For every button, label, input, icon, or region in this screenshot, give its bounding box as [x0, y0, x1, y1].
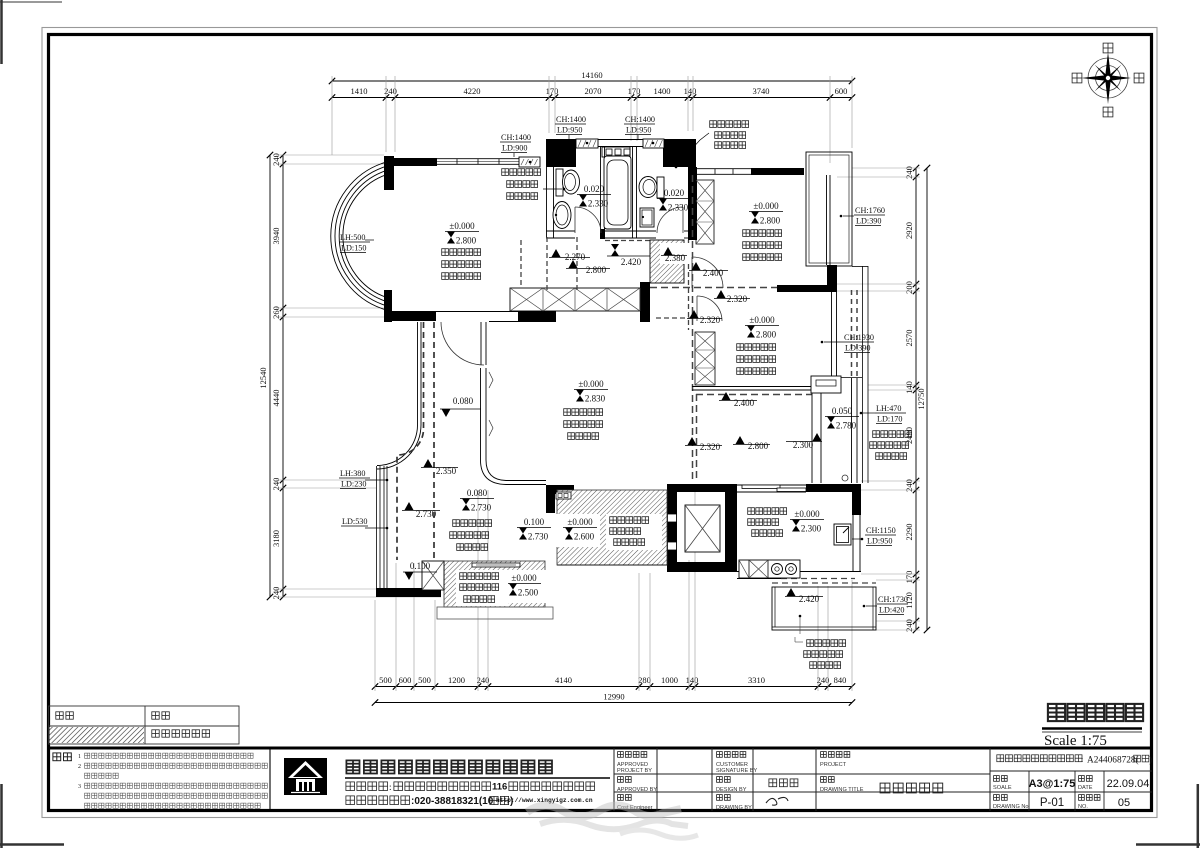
svg-text:): ): [1149, 755, 1152, 766]
svg-text::: :: [389, 782, 392, 792]
svg-text:2.730: 2.730: [471, 503, 492, 513]
svg-text::020-38818321(10: :020-38818321(10: [411, 796, 494, 807]
svg-text:3940: 3940: [271, 228, 281, 245]
svg-text:14160: 14160: [581, 70, 602, 80]
svg-text:0.020: 0.020: [664, 188, 685, 198]
svg-text:4140: 4140: [555, 675, 572, 685]
svg-text:2570: 2570: [904, 330, 914, 347]
svg-text:2070: 2070: [585, 86, 602, 96]
svg-text:LH:500: LH:500: [340, 233, 365, 242]
svg-text:0.100: 0.100: [524, 517, 545, 527]
svg-text:±0.000: ±0.000: [749, 315, 775, 325]
svg-text:2290: 2290: [904, 524, 914, 541]
svg-text:240: 240: [477, 675, 490, 685]
svg-text:DRAWING TITLE: DRAWING TITLE: [820, 787, 864, 793]
svg-text:170: 170: [904, 571, 914, 584]
svg-text:240: 240: [817, 675, 830, 685]
svg-text:3740: 3740: [753, 86, 770, 96]
svg-text:240: 240: [271, 478, 281, 491]
svg-text:±0.000: ±0.000: [449, 221, 475, 231]
svg-text:LH:380: LH:380: [340, 469, 365, 478]
svg-text:0.020: 0.020: [584, 184, 605, 194]
svg-text:840: 840: [834, 675, 847, 685]
svg-text::: :: [70, 753, 73, 763]
svg-text:140: 140: [684, 86, 697, 96]
svg-text:PROJECT BY: PROJECT BY: [617, 768, 652, 774]
svg-text:0.050: 0.050: [832, 406, 853, 416]
svg-text:CH:1150: CH:1150: [866, 526, 896, 535]
svg-text:LD:170: LD:170: [877, 415, 902, 424]
svg-text:500: 500: [379, 675, 392, 685]
svg-text:140: 140: [686, 675, 699, 685]
svg-text:LD:150: LD:150: [341, 244, 366, 253]
svg-text:2.420: 2.420: [621, 257, 642, 267]
svg-text:APPROVED BY: APPROVED BY: [617, 787, 657, 793]
svg-text:CH:1400: CH:1400: [501, 133, 531, 142]
svg-text:CUSTOMER: CUSTOMER: [716, 762, 748, 768]
svg-text:NO.: NO.: [1078, 804, 1088, 810]
svg-text:2.330: 2.330: [668, 203, 689, 213]
svg-text:±0.000: ±0.000: [567, 517, 593, 527]
svg-text:APPROVED: APPROVED: [617, 762, 648, 768]
svg-text:1: 1: [78, 754, 81, 760]
svg-text:CH:1760: CH:1760: [855, 206, 885, 215]
svg-text:1000: 1000: [661, 675, 678, 685]
svg-text:2.800: 2.800: [760, 216, 781, 226]
svg-text:±0.000: ±0.000: [511, 573, 537, 583]
svg-text:2.320: 2.320: [727, 294, 748, 304]
svg-text:2.800: 2.800: [756, 330, 777, 340]
svg-text:2.800: 2.800: [456, 236, 477, 246]
svg-text:LD:390: LD:390: [845, 344, 870, 353]
svg-text:LH:470: LH:470: [876, 404, 901, 413]
svg-text:2.320: 2.320: [700, 442, 721, 452]
svg-text:2920: 2920: [904, 222, 914, 239]
svg-text:4440: 4440: [271, 390, 281, 407]
svg-text::: :: [1005, 776, 1007, 784]
svg-text:2.330: 2.330: [588, 199, 609, 209]
svg-text:2.320: 2.320: [700, 315, 721, 325]
svg-text:2.500: 2.500: [518, 588, 539, 598]
svg-text:±0.000: ±0.000: [578, 379, 604, 389]
svg-text::: :: [1081, 754, 1083, 764]
svg-text:170: 170: [546, 86, 559, 96]
svg-text:CH:1930: CH:1930: [844, 333, 874, 342]
svg-text:12990: 12990: [603, 692, 624, 702]
svg-text:1200: 1200: [448, 675, 465, 685]
svg-text:CH:1400: CH:1400: [625, 115, 655, 124]
svg-text:SOALE: SOALE: [993, 785, 1012, 791]
svg-text:±0.000: ±0.000: [753, 201, 779, 211]
svg-text:0.100: 0.100: [410, 561, 431, 571]
svg-text:3: 3: [78, 784, 81, 790]
svg-text:2.800: 2.800: [748, 441, 769, 451]
svg-text:0.080: 0.080: [467, 488, 488, 498]
svg-text:2.830: 2.830: [585, 394, 606, 404]
svg-text:DESIGN BY: DESIGN BY: [716, 787, 747, 793]
svg-text:CH:1400: CH:1400: [556, 115, 586, 124]
svg-text:600: 600: [835, 86, 848, 96]
svg-text:600: 600: [399, 675, 412, 685]
svg-text:240: 240: [271, 587, 281, 600]
svg-text:LD:900: LD:900: [502, 144, 527, 153]
svg-text:2: 2: [78, 764, 81, 770]
svg-text:LD:390: LD:390: [856, 217, 881, 226]
svg-text:2.730: 2.730: [528, 532, 549, 542]
svg-text:22.09.04: 22.09.04: [1107, 778, 1150, 790]
svg-text:05: 05: [1118, 797, 1130, 809]
svg-text:PROJECT: PROJECT: [820, 762, 847, 768]
svg-text:LD:950: LD:950: [557, 126, 582, 135]
svg-text:SIGNATURE BY: SIGNATURE BY: [716, 768, 758, 774]
svg-text:2.600: 2.600: [574, 532, 595, 542]
svg-text:1400: 1400: [654, 86, 671, 96]
svg-text:4220: 4220: [464, 86, 481, 96]
svg-text:2.400: 2.400: [734, 398, 755, 408]
svg-text:DRAWING BY: DRAWING BY: [716, 805, 752, 811]
svg-text:2.400: 2.400: [703, 268, 724, 278]
svg-text:DATE: DATE: [1078, 785, 1093, 791]
svg-text:2.270: 2.270: [565, 252, 586, 262]
svg-text:3310: 3310: [748, 675, 765, 685]
svg-text:140: 140: [904, 381, 914, 394]
svg-text:12750: 12750: [916, 388, 926, 409]
svg-text:280: 280: [638, 675, 651, 685]
svg-text:2.800: 2.800: [586, 265, 607, 275]
svg-text:P-01: P-01: [1040, 797, 1064, 809]
svg-text:116: 116: [492, 782, 507, 793]
svg-text:LD:530: LD:530: [342, 517, 367, 526]
svg-text:DRAWING No: DRAWING No: [993, 804, 1029, 810]
svg-text:1410: 1410: [351, 86, 368, 96]
svg-text:CH:1730: CH:1730: [878, 595, 908, 604]
svg-text:2.300: 2.300: [801, 524, 822, 534]
svg-text:12540: 12540: [258, 367, 268, 388]
svg-text:3180: 3180: [271, 530, 281, 547]
svg-text:2.420: 2.420: [799, 594, 820, 604]
svg-text:LD:420: LD:420: [879, 606, 904, 615]
svg-text:A244068728(: A244068728(: [1087, 755, 1139, 766]
svg-text:LD:230: LD:230: [341, 480, 366, 489]
svg-text:500: 500: [418, 675, 431, 685]
svg-text:±0.000: ±0.000: [794, 509, 820, 519]
svg-text:LD:950: LD:950: [626, 126, 651, 135]
svg-text:LD:950: LD:950: [867, 537, 892, 546]
svg-text:170: 170: [628, 86, 641, 96]
svg-text:2.780: 2.780: [836, 421, 857, 431]
svg-text:A3@1:75: A3@1:75: [1029, 778, 1076, 790]
svg-text:200: 200: [904, 281, 914, 294]
svg-text:0.080: 0.080: [453, 396, 474, 406]
